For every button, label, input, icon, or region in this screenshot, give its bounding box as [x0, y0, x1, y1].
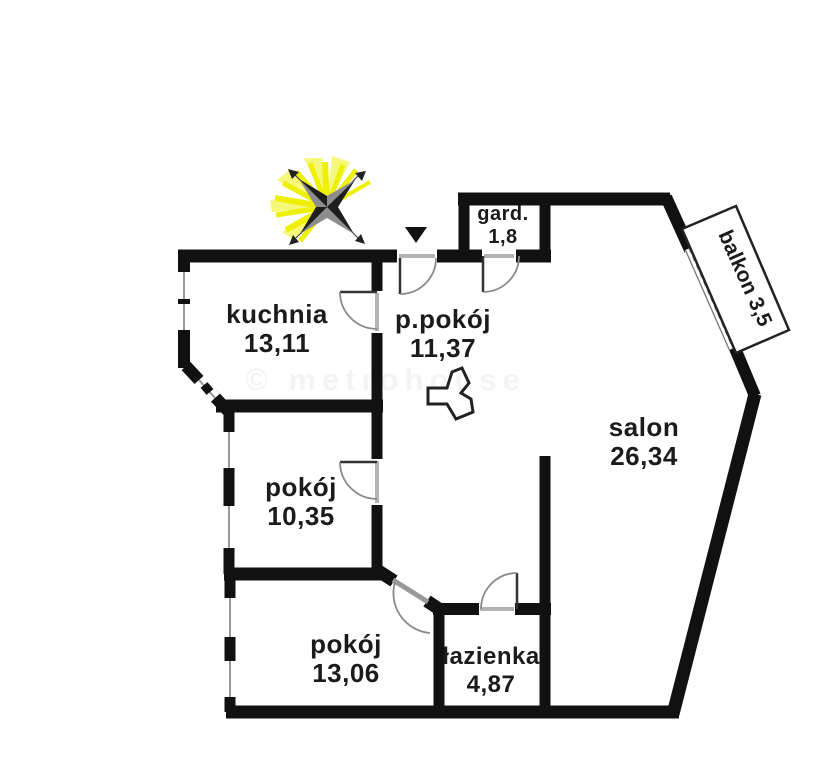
floor-plan: balkon 3,5: [0, 0, 832, 768]
room-name: p.pokój: [395, 304, 491, 334]
room-label-kuchnia: kuchnia 13,11: [226, 300, 328, 358]
room-name: łazienka: [442, 643, 539, 670]
room-area: 26,34: [609, 442, 679, 471]
room-label-salon: salon 26,34: [609, 413, 679, 471]
room-area: 1,8: [477, 226, 528, 249]
room-label-gard: gard. 1,8: [477, 203, 528, 249]
room-label-pokoj-10: pokój 10,35: [265, 473, 337, 531]
room-label-pokoj-13: pokój 13,06: [310, 630, 382, 688]
room-name: pokój: [265, 472, 337, 502]
room-label-p-pokoj: p.pokój 11,37: [395, 305, 491, 363]
room-name: gard.: [477, 203, 528, 225]
compass-rose-icon: [270, 156, 370, 245]
watermark: © metrohouse: [245, 362, 585, 398]
room-label-lazienka: łazienka 4,87: [442, 643, 539, 699]
room-area: 13,06: [310, 659, 382, 688]
room-area: 11,37: [395, 334, 491, 363]
room-name: pokój: [310, 629, 382, 659]
room-area: 4,87: [442, 671, 539, 699]
room-name: salon: [609, 412, 679, 442]
room-area: 13,11: [226, 329, 328, 358]
room-name: kuchnia: [226, 299, 328, 329]
room-area: 10,35: [265, 502, 337, 531]
entrance-marker-icon: [405, 227, 427, 243]
